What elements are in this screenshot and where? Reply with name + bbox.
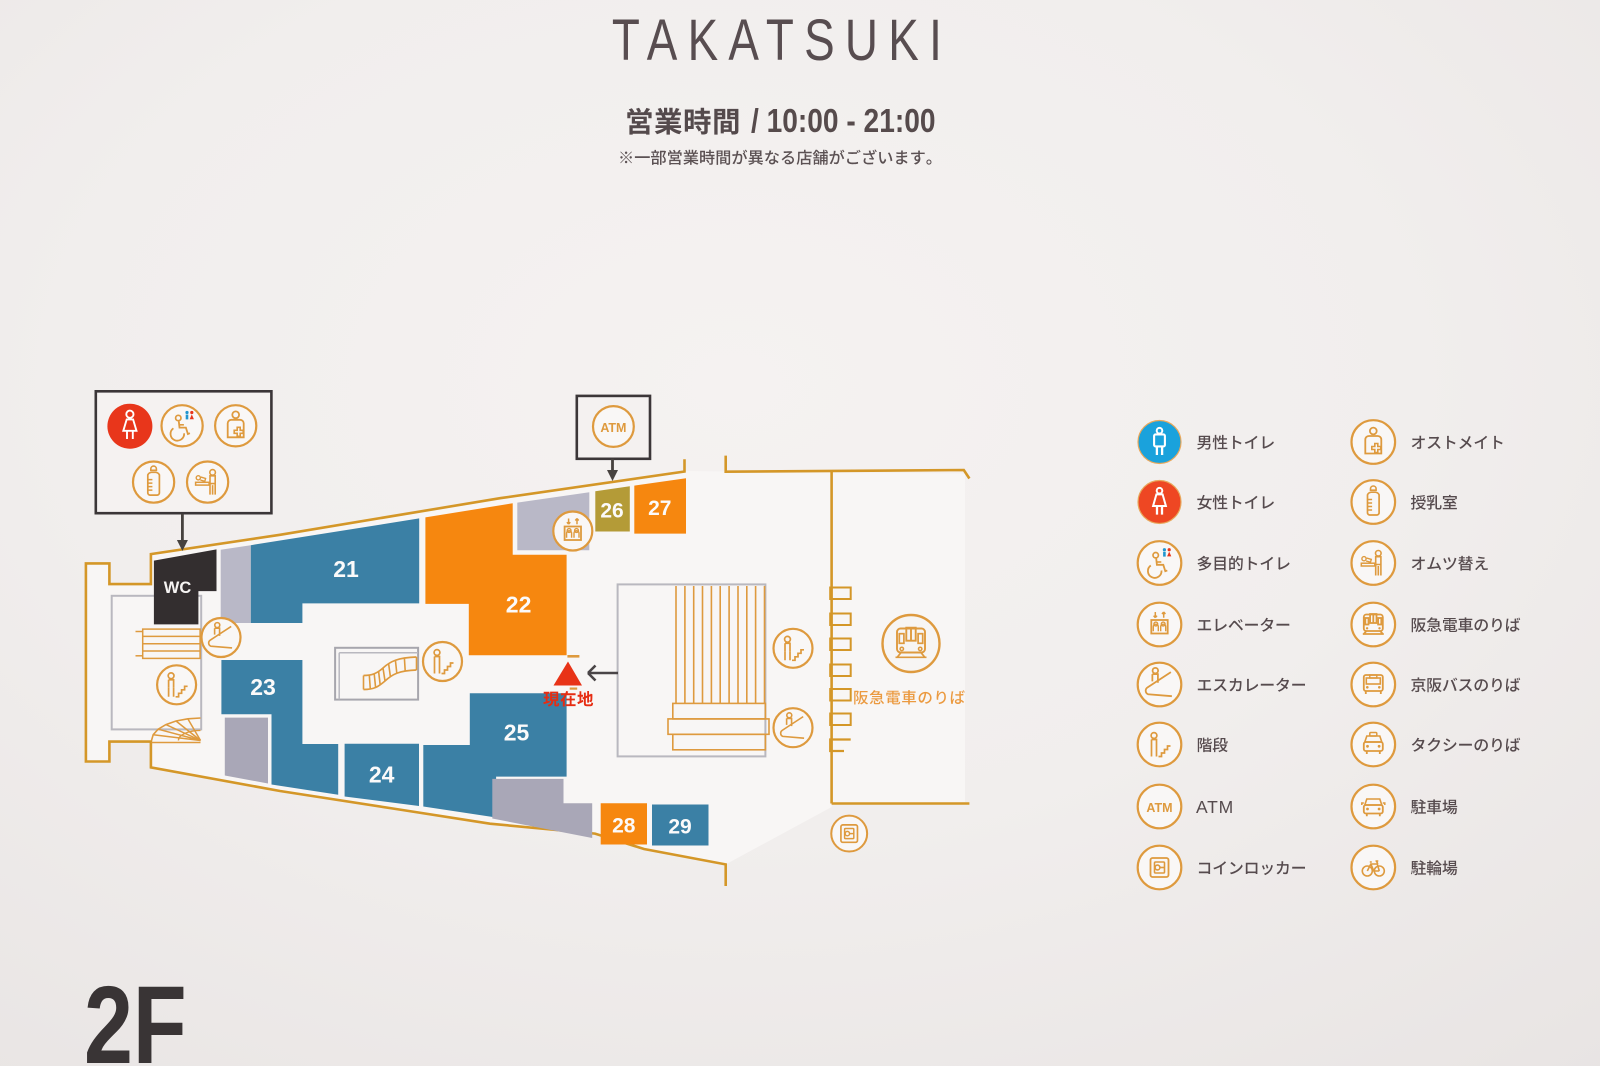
svg-text:22: 22	[506, 592, 532, 618]
svg-text:WC: WC	[164, 579, 192, 597]
svg-text:2F: 2F	[84, 965, 187, 1066]
svg-text:29: 29	[668, 816, 691, 839]
svg-text:26: 26	[600, 500, 623, 523]
svg-text:TAKATSUKI: TAKATSUKI	[612, 9, 952, 73]
svg-text:ATM: ATM	[1146, 801, 1172, 815]
svg-text:24: 24	[369, 762, 395, 788]
svg-text:21: 21	[333, 556, 359, 582]
svg-text:/ 10:00 - 21:00: / 10:00 - 21:00	[751, 102, 936, 140]
svg-text:25: 25	[504, 720, 530, 746]
svg-text:27: 27	[648, 497, 671, 520]
svg-text:23: 23	[250, 674, 276, 700]
svg-text:ATM: ATM	[1196, 797, 1234, 817]
svg-text:ATM: ATM	[600, 421, 626, 435]
svg-text:28: 28	[612, 815, 636, 838]
